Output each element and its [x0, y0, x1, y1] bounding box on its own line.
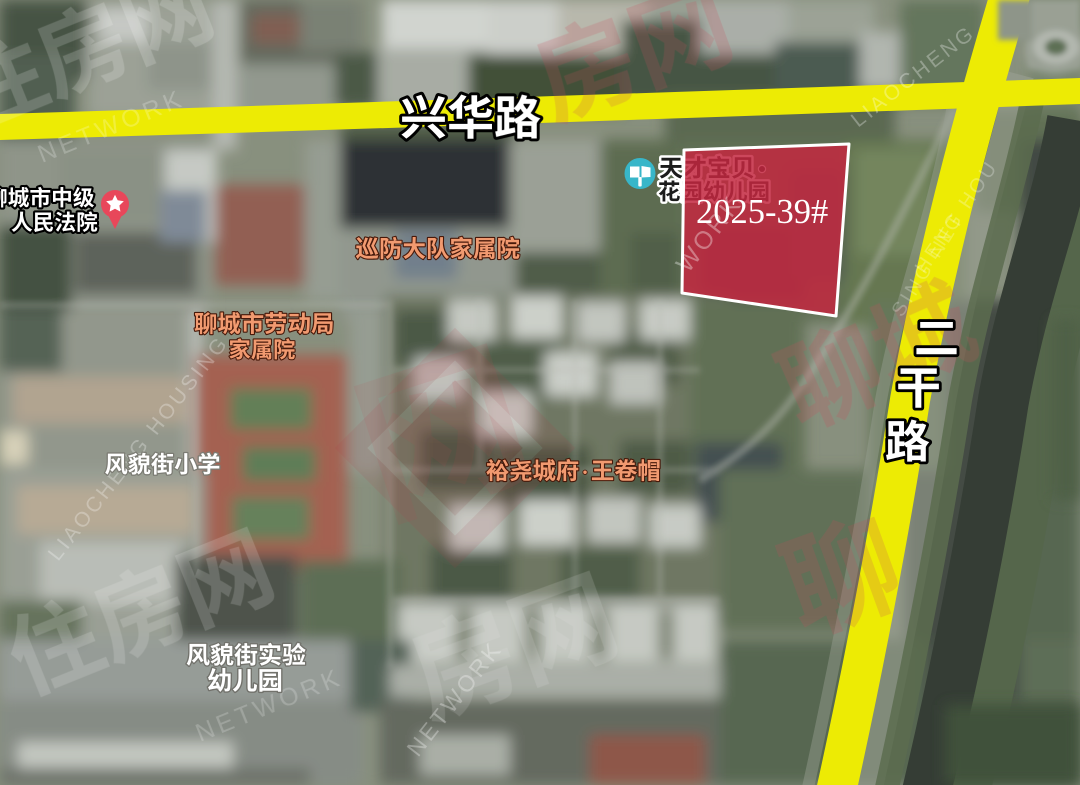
svg-text:2025-39#: 2025-39# [696, 193, 828, 231]
